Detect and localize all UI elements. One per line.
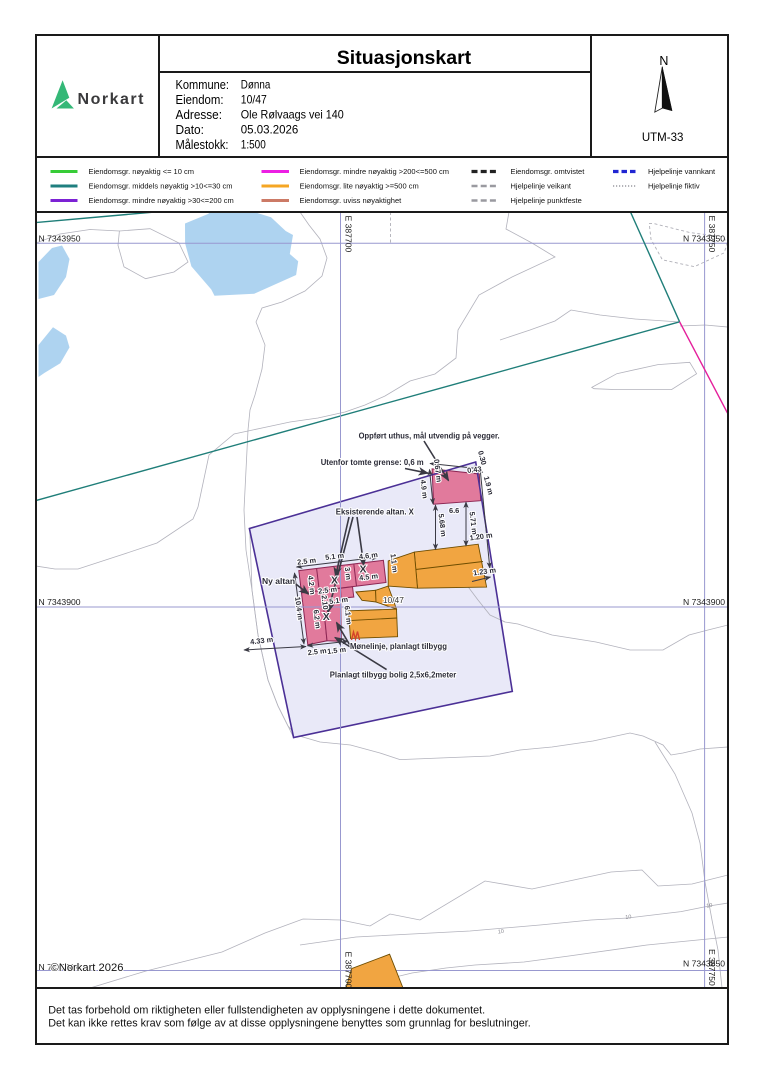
svg-text:Kommune:: Kommune:	[176, 77, 230, 92]
svg-text:Utenfor tomte grense: 0,6 m: Utenfor tomte grense: 0,6 m	[321, 457, 424, 467]
svg-text:Dønna: Dønna	[241, 78, 271, 92]
svg-text:3 m: 3 m	[343, 567, 354, 581]
svg-text:UTM-33: UTM-33	[642, 132, 684, 144]
svg-text:Hjelpelinje punktfeste: Hjelpelinje punktfeste	[511, 196, 582, 205]
svg-text:Situasjonskart: Situasjonskart	[337, 47, 472, 69]
svg-text:Målestokk:: Målestokk:	[176, 137, 229, 152]
svg-text:N 7343950: N 7343950	[39, 233, 81, 243]
svg-text:0.43: 0.43	[467, 464, 482, 475]
svg-text:Eiendomsgr. lite nøyaktig >=50: Eiendomsgr. lite nøyaktig >=500 cm	[300, 182, 419, 191]
svg-text:Eiendom:: Eiendom:	[176, 92, 224, 107]
svg-text:Ny altan: Ny altan	[262, 576, 295, 586]
svg-text:Eiendomsgr. middels nøyaktig >: Eiendomsgr. middels nøyaktig >10<=30 cm	[89, 182, 233, 191]
svg-text:Ole Rølvaags vei 140: Ole Rølvaags vei 140	[241, 108, 344, 122]
svg-text:Oppført uthus, mål utvendig på: Oppført uthus, mål utvendig på vegger.	[359, 431, 500, 441]
svg-text:Eiendomsgr. mindre nøyaktig >2: Eiendomsgr. mindre nøyaktig >200<=500 cm	[300, 167, 449, 176]
svg-text:Det kan ikke rettes krav som f: Det kan ikke rettes krav som følge av at…	[48, 1018, 531, 1030]
svg-text:N 7343950: N 7343950	[683, 233, 725, 243]
svg-text:X: X	[323, 611, 330, 623]
svg-text:N 7343900: N 7343900	[39, 597, 81, 607]
svg-text:10: 10	[706, 903, 713, 910]
svg-text:Adresse:: Adresse:	[176, 107, 223, 122]
svg-text:Hjelpelinje veikant: Hjelpelinje veikant	[511, 182, 572, 191]
svg-text:Eiendomsgr. omtvistet: Eiendomsgr. omtvistet	[511, 167, 586, 176]
svg-text:X: X	[360, 563, 367, 575]
svg-text:10/47: 10/47	[383, 595, 404, 605]
svg-text:X: X	[331, 575, 338, 587]
svg-text:N 7343900: N 7343900	[683, 597, 725, 607]
svg-text:E 387700: E 387700	[344, 952, 354, 989]
svg-text:Det tas forbehold om riktighet: Det tas forbehold om riktigheten eller f…	[48, 1005, 485, 1017]
svg-text:Hjelpelinje vannkant: Hjelpelinje vannkant	[648, 167, 716, 176]
svg-text:Eiendomsgr. uviss nøyaktighet: Eiendomsgr. uviss nøyaktighet	[300, 196, 403, 205]
svg-text:Planlagt tilbygg bolig 2,5x6,2: Planlagt tilbygg bolig 2,5x6,2meter	[330, 669, 457, 679]
svg-text:1:500: 1:500	[241, 138, 266, 152]
svg-text:10/47: 10/47	[241, 93, 267, 107]
svg-text:Mønelinje, planlagt tilbygg: Mønelinje, planlagt tilbygg	[350, 641, 447, 651]
svg-text:6.6: 6.6	[449, 506, 459, 515]
svg-text:E 387750: E 387750	[707, 216, 717, 253]
svg-text:©Norkart 2026: ©Norkart 2026	[51, 962, 124, 974]
svg-text:05.03.2026: 05.03.2026	[241, 123, 299, 137]
svg-text:Norkart: Norkart	[78, 91, 145, 108]
svg-text:10: 10	[498, 929, 505, 936]
svg-text:10: 10	[625, 914, 632, 921]
svg-text:E 387700: E 387700	[344, 216, 354, 253]
svg-text:Eiendomsgr. nøyaktig <= 10 cm: Eiendomsgr. nøyaktig <= 10 cm	[89, 167, 194, 176]
svg-text:Hjelpelinje fiktiv: Hjelpelinje fiktiv	[648, 182, 700, 191]
svg-text:N 7343850: N 7343850	[683, 959, 725, 969]
svg-text:N: N	[659, 54, 668, 68]
svg-text:E 387750: E 387750	[707, 949, 717, 986]
svg-text:Eksisterende altan. X: Eksisterende altan. X	[336, 507, 414, 517]
svg-text:Dato:: Dato:	[176, 122, 205, 137]
svg-text:Eiendomsgr. mindre nøyaktig >3: Eiendomsgr. mindre nøyaktig >30<=200 cm	[89, 196, 234, 205]
